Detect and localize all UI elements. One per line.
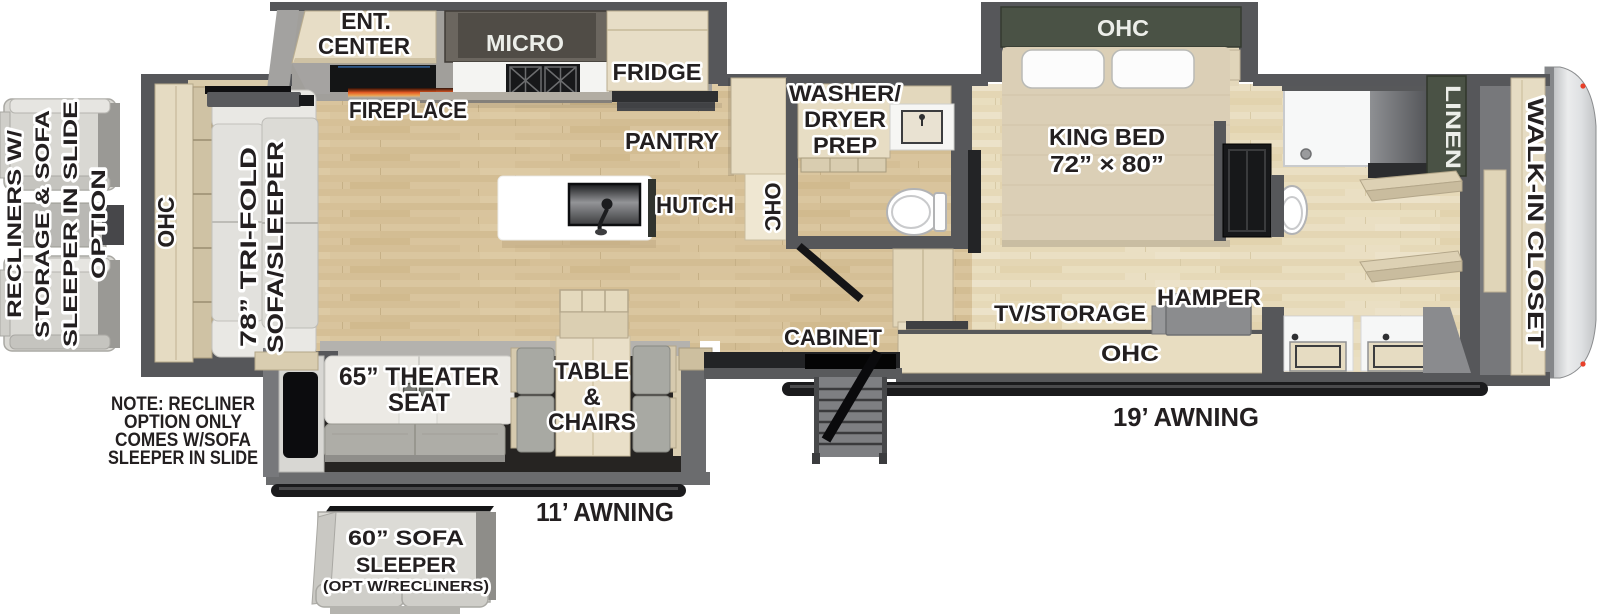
- svg-text:72” × 80”: 72” × 80”: [1050, 151, 1164, 177]
- svg-text:19’ AWNING: 19’ AWNING: [1113, 402, 1259, 432]
- svg-text:OHC: OHC: [1101, 341, 1159, 366]
- svg-text:SLEEPER IN SLIDE: SLEEPER IN SLIDE: [61, 101, 82, 347]
- svg-text:PREP: PREP: [813, 133, 877, 158]
- svg-text:STORAGE & SOFA: STORAGE & SOFA: [33, 110, 54, 338]
- svg-text:FRIDGE: FRIDGE: [613, 59, 702, 85]
- svg-text:SLEEPER: SLEEPER: [356, 554, 456, 577]
- svg-text:11’ AWNING: 11’ AWNING: [536, 497, 674, 527]
- svg-text:LINEN: LINEN: [1441, 85, 1464, 169]
- svg-text:SOFA/SLEEPER: SOFA/SLEEPER: [263, 141, 288, 353]
- svg-text:65” THEATER: 65” THEATER: [339, 363, 499, 391]
- svg-text:OHC: OHC: [1097, 15, 1149, 41]
- svg-text:ENT.: ENT.: [341, 8, 391, 34]
- svg-text:TV/STORAGE: TV/STORAGE: [994, 301, 1146, 326]
- svg-text:DRYER: DRYER: [804, 107, 886, 132]
- svg-text:CENTER: CENTER: [318, 33, 410, 59]
- svg-text:HAMPER: HAMPER: [1157, 285, 1261, 310]
- svg-text:&: &: [583, 384, 600, 411]
- svg-text:RECLINERS W/: RECLINERS W/: [5, 129, 26, 318]
- svg-text:KING BED: KING BED: [1049, 124, 1165, 150]
- svg-text:CABINET: CABINET: [784, 325, 883, 350]
- svg-text:CHAIRS: CHAIRS: [548, 409, 636, 436]
- svg-text:OHC: OHC: [760, 183, 785, 232]
- svg-text:78” TRI-FOLD: 78” TRI-FOLD: [236, 147, 261, 347]
- svg-text:TABLE: TABLE: [555, 358, 629, 385]
- svg-text:WASHER/: WASHER/: [789, 81, 901, 106]
- svg-text:HUTCH: HUTCH: [656, 192, 734, 218]
- svg-text:SEAT: SEAT: [388, 389, 450, 417]
- svg-text:(OPT W/RECLINERS): (OPT W/RECLINERS): [323, 579, 489, 595]
- svg-text:FIREPLACE: FIREPLACE: [349, 97, 467, 123]
- svg-text:MICRO: MICRO: [486, 30, 564, 56]
- svg-text:OPTION: OPTION: [89, 169, 110, 279]
- svg-text:WALK-IN CLOSET: WALK-IN CLOSET: [1523, 98, 1548, 349]
- svg-text:OHC: OHC: [153, 196, 179, 247]
- svg-text:60” SOFA: 60” SOFA: [348, 527, 464, 550]
- svg-text:SLEEPER IN SLIDE: SLEEPER IN SLIDE: [108, 448, 258, 469]
- svg-text:PANTRY: PANTRY: [625, 128, 719, 154]
